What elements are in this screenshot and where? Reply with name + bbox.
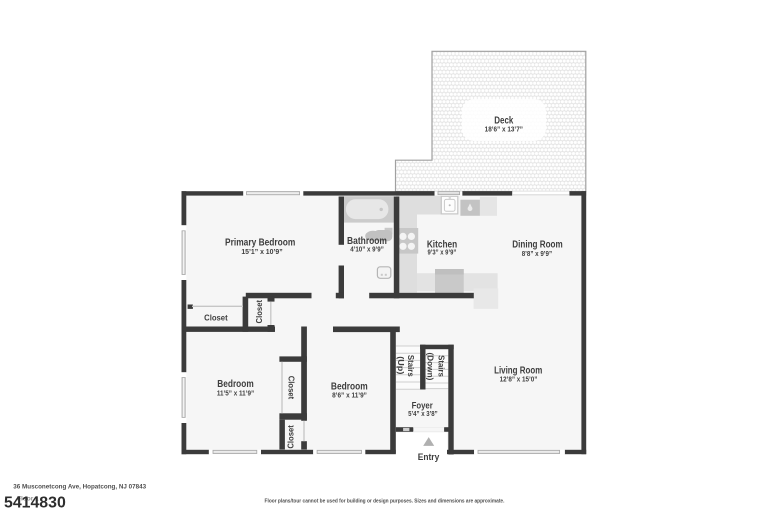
svg-text:Stairs: Stairs <box>436 355 445 377</box>
svg-text:8’8” x 9’9”: 8’8” x 9’9” <box>522 249 553 258</box>
svg-text:12’8” x 15’0”: 12’8” x 15’0” <box>500 375 538 384</box>
svg-text:Stairs: Stairs <box>406 355 415 377</box>
svg-text:Closet: Closet <box>287 425 296 449</box>
svg-text:36 Musconetcong Ave, Hopatcong: 36 Musconetcong Ave, Hopatcong, NJ 07843 <box>13 484 146 491</box>
svg-text:5’4” x 3’8”: 5’4” x 3’8” <box>408 411 438 418</box>
svg-text:15’1” x 10’9”: 15’1” x 10’9” <box>241 247 282 256</box>
svg-text:5414830: 5414830 <box>4 495 66 512</box>
svg-text:Foyer: Foyer <box>412 401 434 411</box>
svg-text:11’5” x 11’9”: 11’5” x 11’9” <box>217 388 254 397</box>
svg-text:(Down): (Down) <box>425 352 434 380</box>
svg-text:Closet: Closet <box>204 313 228 322</box>
svg-text:Floor plans/tour cannot be use: Floor plans/tour cannot be used for buil… <box>265 498 505 504</box>
svg-text:Entry: Entry <box>418 451 440 462</box>
svg-text:(Up): (Up) <box>396 356 405 374</box>
svg-text:4’10” x 9’9”: 4’10” x 9’9” <box>350 245 384 254</box>
svg-text:Closet: Closet <box>255 300 264 324</box>
svg-text:8’6” x 11’9”: 8’6” x 11’9” <box>332 391 367 400</box>
svg-text:9’3” x 9’9”: 9’3” x 9’9” <box>428 248 457 257</box>
svg-text:18’6” x 13’7”: 18’6” x 13’7” <box>485 125 523 134</box>
svg-text:Closet: Closet <box>286 376 295 400</box>
